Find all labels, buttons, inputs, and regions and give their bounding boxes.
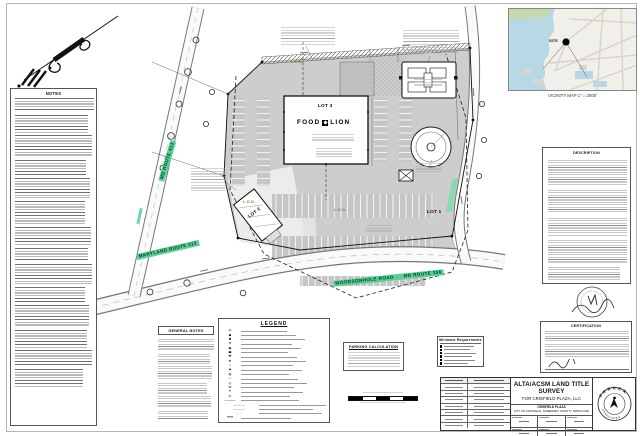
stripes-west-2: [257, 98, 270, 186]
complex-note: [414, 79, 442, 86]
general-notes-title: GENERAL NOTES: [159, 329, 213, 333]
stripes-south-2: [272, 206, 434, 218]
building-note-1: [312, 134, 354, 142]
surveyor-seal: [566, 284, 618, 322]
general-notes-title-box: GENERAL NOTES: [158, 326, 214, 335]
note-paragraph: [15, 350, 92, 366]
note-paragraph: [15, 98, 94, 112]
legend-symbol: ○: [222, 364, 238, 368]
note-paragraph: [158, 366, 212, 380]
note-paragraph: [15, 227, 91, 245]
description-title: DESCRIPTION: [543, 151, 630, 155]
curb-note: [366, 225, 392, 232]
legend-title: LEGEND: [219, 321, 329, 327]
notes-title: NOTES: [11, 91, 96, 96]
lod-label-1: L.O.D.: [291, 60, 303, 64]
title-block-center: ALTA/ACSM LAND TITLE SURVEY FOR CRISFIEL…: [511, 378, 593, 430]
note-paragraph: [158, 354, 210, 364]
svg-text:PARKER: PARKER: [598, 385, 629, 398]
building-note-2: [316, 148, 352, 159]
note-paragraph: [158, 339, 214, 351]
stripes-east-2: [399, 98, 412, 162]
logo-top-text: PARKER: [598, 385, 629, 398]
note-paragraph: [158, 396, 211, 408]
title-block: ALTA/ACSM LAND TITLE SURVEY FOR CRISFIEL…: [440, 377, 636, 431]
note-paragraph: [15, 369, 83, 387]
vicinity-map-graphic: [509, 9, 637, 91]
note-paragraph: [158, 411, 208, 420]
vicinity-caption: VICINITY MAP 1" = 2000': [508, 93, 637, 98]
legend-symbol: ■: [222, 338, 238, 342]
note-paragraph: [15, 135, 92, 157]
survey-subtitle: FOR CRISFIELD PLAZA, LLC: [511, 396, 592, 401]
legend-box: LEGEND ⊙◆■●◉▣✚➤○▲◍□◎⊞✶∅———— — ——·—·—····…: [218, 318, 330, 423]
certification-signature: [547, 359, 577, 369]
legend-symbol: ⊙: [222, 329, 238, 333]
water-tank: [411, 127, 451, 167]
legend-symbol: ➤: [222, 360, 238, 364]
legend-symbol: ✚: [222, 355, 238, 359]
note-paragraph: [15, 330, 87, 348]
food-lion-sign: FOOD LION: [297, 119, 350, 126]
legend-symbol: — — —: [222, 404, 256, 407]
req-row: [438, 362, 483, 365]
site-marker: [562, 38, 569, 45]
firm-logo: PARKER ASSOCIATES: [593, 378, 636, 430]
requirements-table: Minimum Requirements: [437, 336, 484, 367]
stripes-south-1: [272, 194, 434, 206]
note-paragraph: [15, 178, 90, 198]
stripes-east-1: [374, 98, 387, 162]
lot3-label: LOT 3: [318, 103, 333, 108]
note-paragraph: [15, 264, 92, 284]
vicinity-map: SITE: [508, 8, 637, 91]
lod-label-3: L.O.D.: [243, 200, 255, 204]
legend-symbol: ⊞: [222, 386, 238, 390]
revisions-table: [441, 378, 511, 430]
location-line-2: CITY OF CRISFIELD, SOMERSET COUNTY, MARY…: [511, 409, 592, 413]
legend-symbol: ———: [222, 399, 238, 403]
certification-box: CERTIFICATION: [540, 321, 632, 373]
note-paragraph: [158, 383, 207, 394]
adjacent-owner-note-1: [281, 27, 335, 46]
note-paragraph: [15, 115, 88, 133]
adjacent-owner-note-2: [403, 30, 459, 53]
note-paragraph: [15, 305, 89, 327]
loading-dock: [340, 62, 374, 96]
food-lion-logo-icon: [322, 120, 328, 126]
parcel-note-west: [191, 168, 225, 192]
survey-title: ALTA/ACSM LAND TITLE SURVEY: [511, 381, 592, 395]
legend-rows: ⊙◆■●◉▣✚➤○▲◍□◎⊞✶∅———— — ——·—·—·······≡≡≡: [219, 329, 329, 420]
legend-row: ≡≡≡: [219, 416, 329, 420]
food-text: FOOD: [297, 119, 320, 126]
description-box: DESCRIPTION: [542, 147, 631, 284]
legend-symbol: ∅: [222, 395, 238, 399]
substation: [399, 170, 413, 181]
legend-symbol: ◎: [222, 382, 238, 386]
legend-symbol: ≡≡≡: [222, 416, 238, 420]
legend-symbol: ◍: [222, 373, 238, 377]
legend-symbol: ◉: [222, 347, 238, 351]
legend-symbol: ·······: [222, 412, 256, 415]
survey-sheet: NOTES LOT 3 FOOD LION LOT 2 LOT 1 L.O.D.…: [0, 0, 640, 436]
legend-symbol: ▲: [222, 368, 238, 372]
parking-calc-body: [348, 352, 400, 368]
notes-panel: NOTES: [10, 88, 97, 426]
legend-symbol: ✶: [222, 390, 238, 394]
tank-note: [416, 163, 442, 172]
road-bottom: [92, 254, 504, 308]
note-paragraph: [15, 287, 85, 303]
legend-symbol: —·—·—: [222, 408, 256, 411]
signature-squiggle: [572, 299, 614, 313]
legend-symbol: □: [222, 377, 238, 381]
lod-label-2: L.O.D.: [334, 208, 346, 212]
parking-calc-title: PARKING CALCULATION: [344, 345, 403, 349]
legend-symbol: ▣: [222, 351, 238, 355]
note-paragraph: [15, 160, 86, 176]
parking-calc-box: PARKING CALCULATION: [343, 342, 404, 371]
north-arrow-icon: [14, 6, 134, 91]
notes-body: [15, 98, 94, 423]
requirements-title: Minimum Requirements: [438, 338, 483, 342]
graphic-scale-bar: [348, 392, 418, 405]
lot1-label: LOT 1: [427, 209, 442, 214]
lion-text: LION: [330, 119, 350, 126]
legend-symbol: ●: [222, 342, 238, 346]
legend-symbol: ◆: [222, 334, 238, 338]
general-notes-body: [158, 339, 214, 419]
note-paragraph: [15, 201, 85, 225]
certification-title: CERTIFICATION: [541, 324, 631, 328]
site-label: SITE: [549, 38, 558, 43]
note-paragraph: [15, 248, 88, 262]
